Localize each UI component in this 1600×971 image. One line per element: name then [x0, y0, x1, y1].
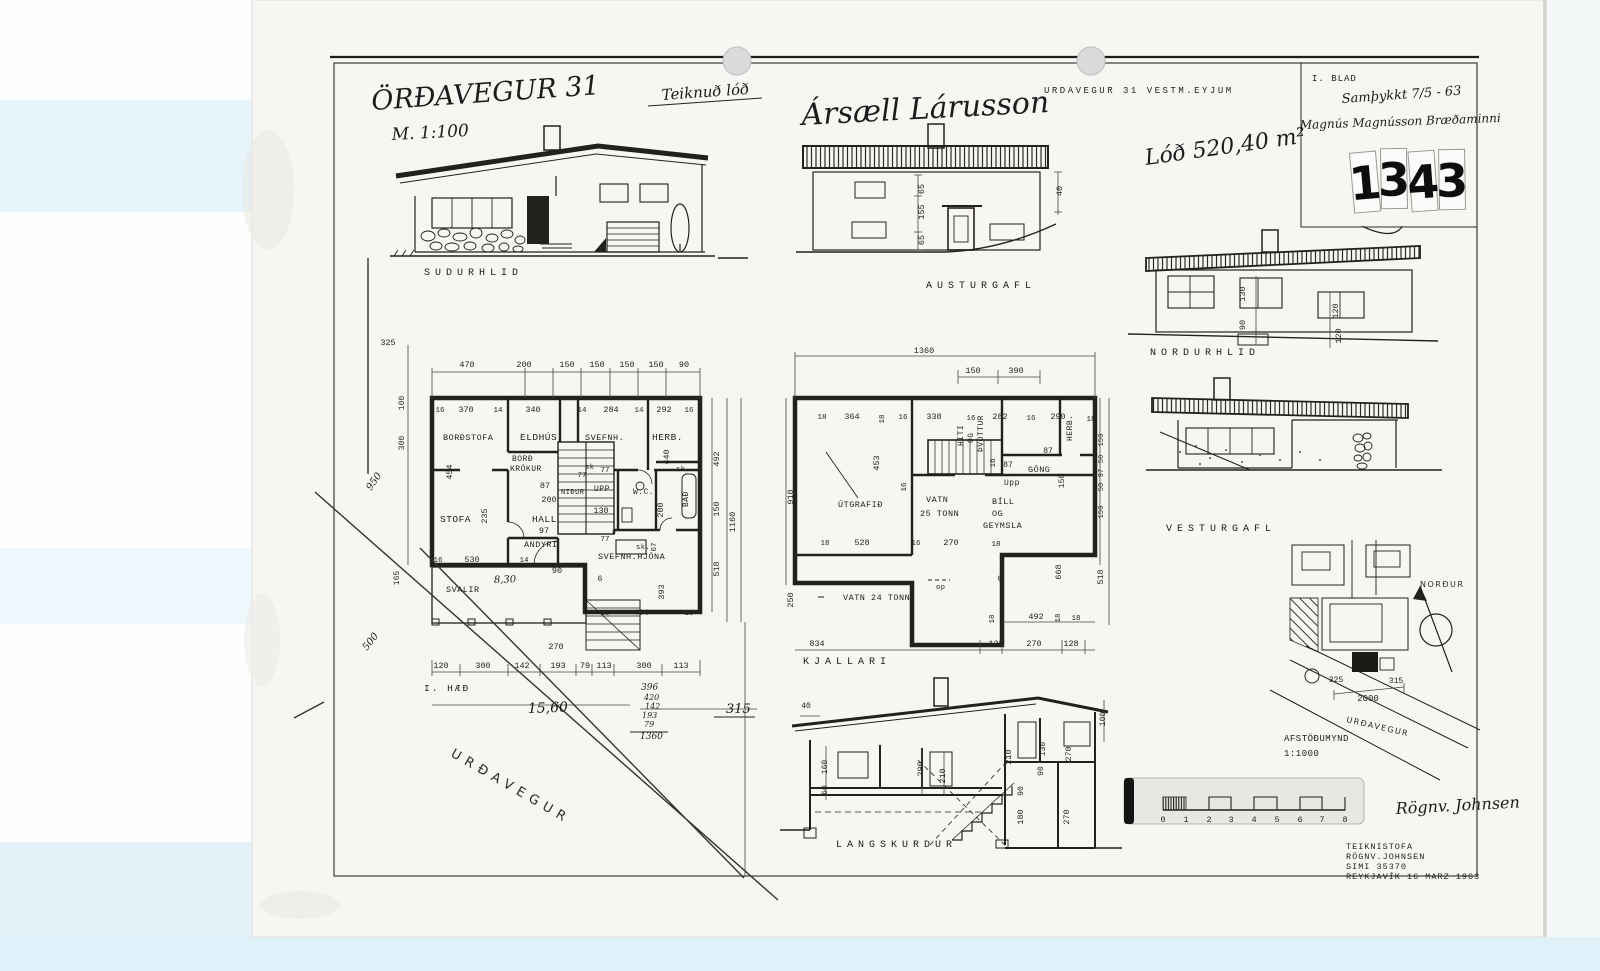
room-hall: HALL: [532, 514, 557, 525]
basement-text-10: 16: [1026, 415, 1036, 423]
label-kjallari: KJALLARI: [803, 657, 891, 668]
scale_bar-text-3: 3: [1228, 815, 1233, 825]
basement-text-6: 16: [898, 414, 908, 422]
basement-text-31: 150: [1098, 506, 1106, 519]
basement-text-52: 128: [988, 639, 1003, 649]
scale_bar-text-5: 5: [1274, 815, 1279, 825]
label-vatn-24-tonn: VATN 24 TONN: [843, 593, 910, 603]
floor_plan-text-11: 340: [525, 405, 540, 415]
label-nordur: NORÐUR: [1420, 580, 1464, 589]
room-stofa: STOFA: [440, 514, 471, 525]
scan-bottom-strip: [0, 937, 1600, 971]
hole-punch-right: [1077, 47, 1105, 75]
room-herb-basement: HERB.: [1066, 414, 1075, 441]
floor_plan-text-25: 235: [480, 508, 490, 523]
room-herb: HERB.: [652, 432, 683, 443]
basement-text-14: 910: [786, 489, 796, 504]
floor_plan-text-41: sk: [676, 466, 685, 474]
site_plan-text-3: 2000: [1357, 694, 1379, 704]
sheet-number: I. BLAD: [1312, 74, 1357, 84]
house-footprint: [1352, 652, 1378, 672]
basement-text-51: 518: [1096, 569, 1106, 584]
section-text-0: 40: [801, 702, 811, 711]
floor_plan-text-39: sk.: [636, 544, 650, 552]
floor_plan-text-57: 270: [548, 642, 563, 652]
section-text-7: 270: [1064, 746, 1074, 761]
section-text-6: 130: [1039, 742, 1048, 757]
floor_plan-text-49: 6: [598, 575, 603, 584]
section-text-2: 60: [821, 785, 830, 795]
floor_plan-text-55: 494: [633, 608, 648, 618]
label-nordurhlid: NORDURHLID: [1150, 348, 1260, 359]
basement-text-49: 18: [1071, 615, 1080, 623]
floor_plan-text-43: 97: [539, 526, 549, 536]
floor_plan-text-12: 14: [577, 407, 587, 415]
floor_plan-text-9: 370: [458, 405, 473, 415]
basement-text-3: 18: [817, 414, 826, 422]
section-text-4: 210: [938, 768, 948, 783]
floor_plan-text-27: 87: [540, 481, 550, 491]
basement-text-53: 270: [1026, 639, 1041, 649]
basement-text-0: 1360: [914, 346, 934, 356]
floor_plan-text-54: 16: [600, 610, 610, 618]
floor_plan-text-38: sk: [585, 464, 594, 472]
floor_plan-text-32: 77: [577, 472, 586, 480]
floor_plan-text-48: 14: [519, 557, 529, 565]
basement-text-44: op: [936, 584, 945, 592]
room-bordstofa: BORÐSTOFA: [443, 433, 494, 443]
elevations-text-8: 130: [1238, 286, 1248, 301]
label-langskurdur: LANGSKURDUR: [836, 840, 957, 851]
floor_plan-text-51: 393: [657, 584, 667, 599]
elevations-text-4: 65: [917, 184, 927, 194]
label-sudurhlid: SUDURHLID: [424, 268, 523, 279]
room-utgrafid: ÚTGRAFIÐ: [838, 499, 883, 510]
elevations-text-10: 120: [1331, 303, 1341, 318]
floor_plan-text-23: 440: [662, 449, 672, 464]
basement-text-33: 25 TONN: [920, 509, 959, 519]
section-text-8: 90: [1037, 766, 1046, 776]
floor_plan-text-20: KRÓKUR: [510, 464, 542, 474]
room-wc: W.C.: [633, 488, 654, 497]
label-austurgafl: AUSTURGAFL: [926, 281, 1036, 292]
scale_bar-text-7: 7: [1319, 815, 1324, 825]
scanned-blueprint-page: 1 3 4 3: [0, 0, 1600, 971]
basement-text-30: 50: [1098, 483, 1106, 491]
basement-text-21: 87: [1003, 461, 1013, 470]
floor_plan-text-34: 130: [593, 506, 608, 516]
elevations-text-7: 40: [1055, 186, 1065, 196]
section-text-12: 100: [1099, 712, 1108, 727]
floor_plan-text-73: 1360: [640, 732, 663, 742]
room-eldhus: ELDHÚS: [520, 432, 557, 443]
floor_plan-text-28: 200: [541, 495, 556, 505]
basement-text-4: 364: [844, 412, 859, 422]
hole-punch-left: [723, 47, 751, 75]
floor_plan-text-79: 100: [398, 396, 407, 411]
room-svefnh-hjona: SVEFNH.HJÓNA: [598, 551, 666, 562]
floor_plan-text-2: 200: [516, 360, 531, 370]
basement-text-15: 16: [901, 482, 909, 492]
basement-text-35: OG: [992, 509, 1003, 519]
floor_plan-text-53: 8,30: [494, 574, 517, 586]
elevations-text-11: 120: [1334, 328, 1344, 343]
floor_plan-text-31: UPP: [594, 485, 610, 494]
floor_plan-text-61: 193: [550, 661, 565, 671]
basement-text-7: 338: [926, 412, 941, 422]
floor_plan-text-36: 200: [656, 502, 666, 517]
floor_plan-text-0: 325: [380, 338, 395, 348]
basement-text-39: 16: [911, 540, 921, 548]
basement-text-1: 150: [965, 366, 980, 376]
floor_plan-text-62: 79: [580, 661, 590, 671]
floor_plan-text-71: 193: [642, 711, 657, 720]
typed-address-header: URDAVEGUR 31 VESTM.EYJUM: [1044, 86, 1234, 96]
floor_plan-text-5: 150: [619, 360, 634, 370]
floor_plan-text-46: 16: [433, 557, 443, 565]
basement-text-50: 668: [1054, 564, 1064, 579]
floor_plan-text-78: 518: [712, 561, 722, 576]
room-svefnh: SVEFNH.: [585, 433, 624, 443]
siteplan-scale: 1:1000: [1284, 749, 1319, 759]
floor_plan-text-59: 300: [475, 661, 490, 671]
basement-text-2: 390: [1008, 366, 1023, 376]
basement-text-8: 16: [966, 415, 976, 423]
basement-text-17: HITI: [957, 425, 966, 446]
section-text-10: 180: [1016, 809, 1026, 824]
floor_plan-text-81: 165: [393, 571, 402, 586]
room-vatn-25: VATN: [926, 495, 948, 505]
room-bill-og-geymsla: BÍLL: [992, 496, 1014, 507]
room-andyri: ANDYRI: [524, 540, 558, 550]
floor_plan-text-68: 396: [641, 683, 658, 693]
room-gong: GÖNG: [1028, 464, 1050, 475]
basement-text-28: 50: [1098, 455, 1106, 463]
floor_plan-text-26: 454: [445, 464, 455, 479]
room-hiti-og-thvottur: ÞVOTTUR: [977, 415, 986, 452]
floor_plan-text-6: 150: [648, 360, 663, 370]
basement-text-29: 97: [1098, 469, 1106, 477]
label-vesturgafl: VESTURGAFL: [1166, 524, 1276, 535]
floor_plan-text-67: 15,60: [528, 700, 569, 717]
floor_plan-text-80: 300: [398, 436, 407, 451]
floor_plan-text-74: 315: [726, 702, 751, 717]
basement-text-11: 290: [1050, 412, 1065, 422]
floor_plan-text-33: 77: [600, 467, 609, 475]
floor_plan-text-10: 14: [493, 407, 503, 415]
titleblock-line: TEIKNISTOFA: [1346, 842, 1413, 852]
basement-text-41: 18: [991, 541, 1000, 549]
basement-text-24: 150: [1058, 474, 1067, 489]
titleblock-line: RÖGNV.JOHNSEN: [1346, 851, 1425, 862]
floor_plan-text-14: 14: [634, 407, 644, 415]
floor_plan-text-76: 150: [712, 501, 722, 516]
scale_bar-text-8: 8: [1342, 815, 1347, 825]
titleblock-line: REYKJAVÍK 16 MARZ 1963: [1346, 871, 1480, 882]
basement-text-55: 834: [809, 639, 824, 649]
section-text-3: 290: [916, 761, 926, 776]
basement-text-20: 16: [990, 458, 998, 468]
floor_plan-text-75: 492: [712, 451, 722, 466]
basement-text-47: 492: [1028, 612, 1043, 622]
floor_plan-text-13: 284: [603, 405, 618, 415]
floor_plan-text-72: 79: [644, 720, 654, 729]
basement-text-26: 87: [1043, 447, 1053, 456]
floor_plan-text-4: 150: [589, 360, 604, 370]
elevations-text-6: 65: [917, 235, 927, 245]
basement-text-48: 18: [1055, 613, 1063, 622]
basement-text-46: 18: [989, 614, 997, 623]
room-bad: BAÐ: [682, 491, 691, 507]
basement-text-13: 453: [872, 455, 882, 470]
floor_plan-text-3: 150: [559, 360, 574, 370]
basement-text-27: 150: [1098, 434, 1106, 447]
floor_plan-text-7: 90: [679, 360, 689, 370]
stamp-digit: 3: [1436, 153, 1469, 208]
basement-text-18: OG: [967, 432, 976, 443]
scale_bar-text-0: 0: [1160, 815, 1165, 825]
section-text-5: 210: [1004, 749, 1014, 764]
floor_plan-text-30: NIÐUR: [561, 489, 585, 497]
roof-fascia: [803, 146, 1048, 168]
floor_plan-text-40: 67: [651, 542, 659, 551]
label-i-haed: I. HÆÐ: [424, 683, 470, 694]
titleblock-line: SIMI 35370: [1346, 862, 1407, 872]
floor_plan-text-56: 16: [684, 610, 694, 618]
scale_bar-text-2: 2: [1206, 815, 1211, 825]
basement-text-9: 282: [992, 412, 1007, 422]
floor_plan-text-44: 77: [600, 536, 609, 544]
basement-text-38: 528: [854, 538, 869, 548]
floor_plan-text-45: 90: [552, 566, 562, 576]
basement-text-12: 18: [1086, 416, 1095, 424]
floor_plan-text-1: 470: [459, 360, 474, 370]
scale_bar-text-4: 4: [1251, 815, 1256, 825]
floor_plan-text-70: 142: [645, 702, 660, 711]
floor_plan-text-65: 113: [673, 661, 688, 671]
floor_plan-text-8: 16: [435, 407, 445, 415]
floor_plan-text-64: 300: [636, 661, 651, 671]
room-svalir: SVALIR: [446, 585, 480, 595]
floor_plan-text-69: 420: [643, 693, 659, 702]
floor_plan-text-63: 113: [596, 661, 611, 671]
entry-door: [527, 196, 549, 244]
basement-text-5: 18: [879, 414, 887, 423]
section-text-11: 270: [1062, 809, 1072, 824]
basement-text-40: 270: [943, 538, 958, 548]
floor_plan-text-15: 292: [656, 405, 671, 415]
basement-text-23: Upp: [1004, 479, 1020, 488]
scale_bar-text-6: 6: [1297, 815, 1302, 825]
basement-text-54: 128: [1063, 639, 1078, 649]
floor_plan-text-60: 142: [514, 661, 529, 671]
section-text-9: 90: [1017, 786, 1026, 796]
floor_plan-text-47: 530: [464, 555, 479, 565]
basement-text-37: 18: [820, 540, 829, 548]
blueprint-scan: 1 3 4 3: [0, 0, 1600, 971]
floor_plan-text-58: 120: [433, 661, 448, 671]
site_plan-text-1: 325: [1329, 676, 1344, 685]
scale_bar-text-1: 1: [1183, 815, 1188, 825]
scale-note: M. 1:100: [390, 121, 469, 145]
elevations-text-5: 155: [917, 204, 927, 219]
basement-text-36: GEYMSLA: [983, 521, 1023, 531]
basement-text-45: 6: [998, 575, 1003, 584]
floor_plan-text-77: 1160: [728, 512, 738, 532]
floor_plan-text-16: 16: [684, 407, 694, 415]
site_plan-text-2: 315: [1389, 677, 1404, 686]
elevations-text-9: 90: [1238, 320, 1248, 330]
label-afstodumynd: AFSTÖÐUMYND: [1284, 733, 1349, 744]
paper-edge-shadow: [1543, 0, 1547, 937]
basement-text-42: 250: [786, 592, 796, 607]
section-text-1: 160: [821, 760, 830, 775]
room-bordkrokur: BORÐ: [512, 455, 533, 464]
